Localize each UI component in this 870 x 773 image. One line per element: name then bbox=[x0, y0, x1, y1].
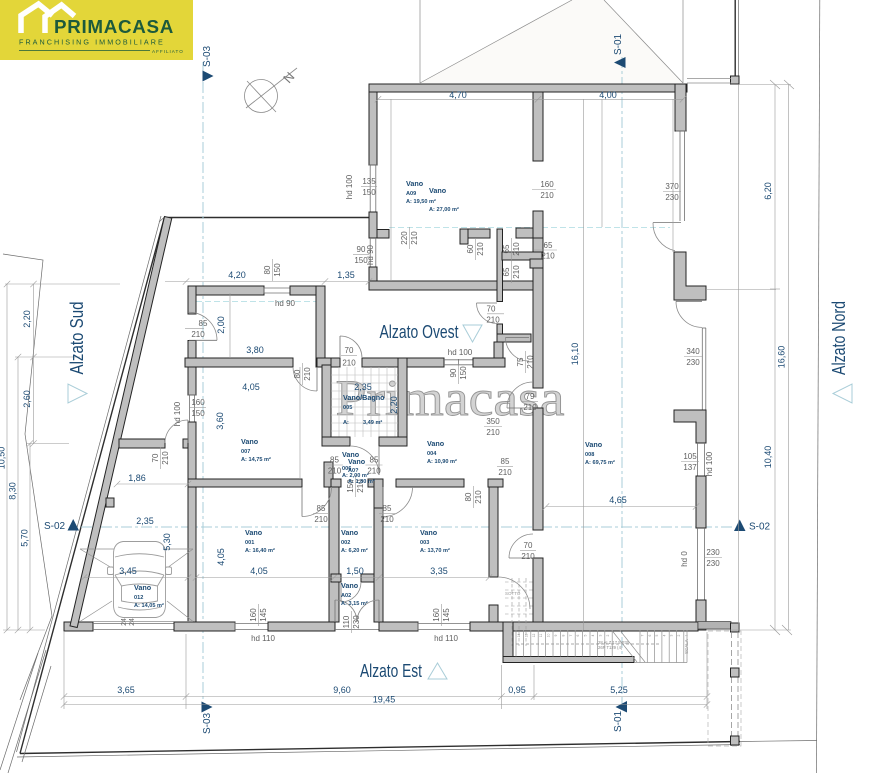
svg-text:3: 3 bbox=[670, 634, 674, 636]
svg-text:65: 65 bbox=[502, 244, 511, 253]
svg-text:A: 2,00 m²: A: 2,00 m² bbox=[342, 472, 369, 479]
svg-text:2: 2 bbox=[677, 634, 681, 636]
svg-text:Vano: Vano bbox=[429, 186, 447, 195]
svg-text:6: 6 bbox=[576, 634, 580, 636]
svg-text:S-03: S-03 bbox=[202, 712, 213, 734]
svg-text:145: 145 bbox=[442, 608, 451, 622]
svg-text:150: 150 bbox=[362, 188, 376, 197]
svg-text:11: 11 bbox=[539, 634, 543, 638]
svg-text:9: 9 bbox=[554, 634, 558, 636]
svg-text:24: 24 bbox=[121, 618, 128, 626]
svg-text:002: 002 bbox=[341, 540, 350, 546]
svg-text:5,70: 5,70 bbox=[20, 529, 30, 547]
svg-text:210: 210 bbox=[486, 316, 500, 325]
svg-text:6,20: 6,20 bbox=[763, 182, 773, 200]
svg-text:012: 012 bbox=[134, 595, 143, 601]
svg-text:1,86: 1,86 bbox=[128, 473, 146, 483]
svg-text:220: 220 bbox=[400, 231, 409, 245]
svg-text:210: 210 bbox=[512, 265, 521, 279]
svg-text:Vano: Vano bbox=[427, 439, 445, 448]
svg-text:4: 4 bbox=[591, 634, 595, 636]
svg-text:230: 230 bbox=[706, 559, 720, 568]
svg-text:85: 85 bbox=[199, 319, 208, 328]
svg-text:160: 160 bbox=[191, 398, 205, 407]
svg-text:S-01: S-01 bbox=[613, 33, 624, 55]
svg-text:16,60: 16,60 bbox=[777, 346, 787, 369]
svg-text:hd 110: hd 110 bbox=[251, 634, 275, 643]
svg-text:210: 210 bbox=[328, 467, 342, 476]
svg-text:210: 210 bbox=[476, 242, 485, 256]
svg-text:210: 210 bbox=[474, 490, 483, 504]
svg-text:4,20: 4,20 bbox=[228, 270, 246, 280]
svg-text:1,50: 1,50 bbox=[346, 566, 364, 576]
svg-text:4,00: 4,00 bbox=[599, 90, 617, 100]
svg-text:hd 90: hd 90 bbox=[275, 299, 296, 308]
svg-text:85: 85 bbox=[383, 504, 392, 513]
svg-text:150: 150 bbox=[273, 263, 282, 277]
svg-text:90: 90 bbox=[449, 368, 458, 377]
svg-text:24: 24 bbox=[129, 618, 136, 626]
svg-text:001: 001 bbox=[245, 540, 254, 546]
svg-text:1,35: 1,35 bbox=[337, 270, 355, 280]
svg-text:210: 210 bbox=[342, 359, 356, 368]
svg-text:3,45: 3,45 bbox=[119, 566, 137, 576]
svg-text:2,60: 2,60 bbox=[22, 390, 32, 408]
svg-text:10,50: 10,50 bbox=[0, 447, 7, 470]
svg-text:210: 210 bbox=[367, 467, 381, 476]
svg-text:Alzato Ovest: Alzato Ovest bbox=[380, 322, 459, 342]
svg-text:210: 210 bbox=[498, 468, 512, 477]
svg-text:6: 6 bbox=[648, 634, 652, 636]
svg-text:003: 003 bbox=[420, 540, 429, 546]
svg-text:Vano: Vano bbox=[348, 457, 366, 466]
svg-text:13: 13 bbox=[524, 634, 528, 638]
svg-text:8: 8 bbox=[561, 634, 565, 636]
svg-text:hd 110: hd 110 bbox=[434, 634, 458, 643]
svg-text:A: 6,20 m²: A: 6,20 m² bbox=[341, 547, 368, 554]
svg-text:FRANCHISING IMMOBILIARE: FRANCHISING IMMOBILIARE bbox=[19, 38, 165, 47]
svg-text:160: 160 bbox=[432, 608, 441, 622]
svg-text:3,65: 3,65 bbox=[117, 685, 135, 695]
svg-text:Vano: Vano bbox=[134, 583, 152, 592]
svg-text:3: 3 bbox=[598, 634, 602, 636]
svg-text:5,30: 5,30 bbox=[162, 533, 172, 551]
svg-text:230: 230 bbox=[665, 193, 679, 202]
svg-text:hd 100: hd 100 bbox=[448, 348, 473, 357]
svg-text:5,25: 5,25 bbox=[610, 685, 628, 695]
svg-text:007: 007 bbox=[241, 449, 250, 455]
svg-text:hd 100: hd 100 bbox=[345, 174, 354, 199]
svg-text:A: 69,75 m²: A: 69,75 m² bbox=[585, 459, 615, 466]
svg-text:210: 210 bbox=[541, 252, 555, 261]
svg-text:S-02: S-02 bbox=[44, 521, 66, 532]
svg-text:Vano: Vano bbox=[406, 179, 424, 188]
svg-text:230: 230 bbox=[706, 548, 720, 557]
svg-text:A: 14,05 m²: A: 14,05 m² bbox=[134, 602, 164, 609]
svg-text:16,10: 16,10 bbox=[570, 343, 580, 366]
svg-text:60: 60 bbox=[466, 244, 475, 253]
svg-text:4,65: 4,65 bbox=[609, 495, 627, 505]
svg-text:79: 79 bbox=[526, 392, 535, 401]
svg-text:Vano: Vano bbox=[341, 528, 359, 537]
svg-text:350: 350 bbox=[486, 417, 500, 426]
svg-text:hd 100: hd 100 bbox=[173, 401, 182, 426]
svg-text:19,45: 19,45 bbox=[373, 695, 396, 705]
svg-text:3,60: 3,60 bbox=[215, 412, 225, 430]
svg-text:A02: A02 bbox=[341, 593, 351, 599]
svg-text:0,95: 0,95 bbox=[508, 685, 526, 695]
svg-text:SOTTO: SOTTO bbox=[505, 591, 521, 596]
svg-text:A: 27,00 m²: A: 27,00 m² bbox=[429, 206, 459, 213]
svg-text:SCALA: SCALA bbox=[684, 639, 689, 654]
svg-text:85: 85 bbox=[501, 457, 510, 466]
svg-text:9,60: 9,60 bbox=[333, 685, 351, 695]
svg-text:160: 160 bbox=[540, 180, 554, 189]
svg-text:160: 160 bbox=[249, 608, 258, 622]
svg-text:210: 210 bbox=[314, 515, 328, 524]
svg-text:10: 10 bbox=[547, 634, 551, 638]
svg-text:150: 150 bbox=[459, 366, 468, 380]
svg-text:A: 14,75 m²: A: 14,75 m² bbox=[241, 456, 271, 463]
svg-text:Vano/Bagno: Vano/Bagno bbox=[343, 393, 385, 402]
svg-text:A: 13,70 m²: A: 13,70 m² bbox=[420, 547, 450, 554]
svg-text:5: 5 bbox=[584, 634, 588, 636]
svg-text:210: 210 bbox=[380, 515, 394, 524]
svg-text:210: 210 bbox=[523, 403, 537, 412]
svg-text:hd 0: hd 0 bbox=[680, 551, 689, 567]
svg-text:3,49 m²: 3,49 m² bbox=[363, 419, 382, 426]
svg-text:S-02: S-02 bbox=[749, 522, 771, 533]
svg-text:4,05: 4,05 bbox=[242, 382, 260, 392]
svg-text:A: 10,90 m²: A: 10,90 m² bbox=[427, 458, 457, 465]
svg-text:2,20: 2,20 bbox=[389, 396, 399, 414]
svg-text:S-01: S-01 bbox=[613, 710, 624, 732]
svg-text:A: 19,50 m²: A: 19,50 m² bbox=[406, 198, 436, 205]
svg-text:S-03: S-03 bbox=[202, 45, 213, 67]
svg-text:Alzato Sud: Alzato Sud bbox=[67, 302, 87, 375]
svg-text:Vano: Vano bbox=[585, 440, 603, 449]
svg-text:hd 90: hd 90 bbox=[366, 244, 375, 265]
svg-text:PRIMACASA: PRIMACASA bbox=[54, 16, 174, 37]
svg-text:90: 90 bbox=[357, 245, 366, 254]
svg-text:10,40: 10,40 bbox=[763, 446, 773, 469]
svg-text:Vano: Vano bbox=[420, 528, 438, 537]
svg-text:75: 75 bbox=[516, 357, 525, 366]
svg-text:70: 70 bbox=[151, 453, 160, 462]
svg-text:110: 110 bbox=[342, 615, 351, 628]
svg-text:3,80: 3,80 bbox=[246, 345, 264, 355]
svg-text:8,30: 8,30 bbox=[8, 482, 18, 500]
svg-text:26P T129 (4): 26P T129 (4) bbox=[598, 645, 623, 650]
svg-text:Alzato Nord: Alzato Nord bbox=[829, 301, 849, 375]
svg-text:5: 5 bbox=[655, 634, 659, 636]
svg-text:2: 2 bbox=[606, 634, 610, 636]
svg-text:65: 65 bbox=[502, 267, 511, 276]
svg-text:12: 12 bbox=[532, 634, 536, 638]
svg-text:4,05: 4,05 bbox=[216, 548, 226, 566]
svg-text:65: 65 bbox=[544, 241, 553, 250]
svg-text:85: 85 bbox=[370, 456, 379, 465]
svg-text:135: 135 bbox=[362, 177, 376, 186]
svg-text:145: 145 bbox=[259, 608, 268, 622]
svg-text:004: 004 bbox=[427, 451, 437, 457]
svg-text:Alzato Est: Alzato Est bbox=[360, 661, 422, 681]
svg-text:150: 150 bbox=[191, 409, 205, 418]
svg-text:2,35: 2,35 bbox=[136, 516, 154, 526]
svg-text:A: 16,40 m²: A: 16,40 m² bbox=[245, 547, 275, 554]
svg-text:Vano: Vano bbox=[245, 528, 263, 537]
svg-text:4,70: 4,70 bbox=[449, 90, 467, 100]
svg-text:2,20: 2,20 bbox=[22, 310, 32, 328]
svg-text:A: 3,15 m²: A: 3,15 m² bbox=[341, 600, 368, 607]
svg-text:005: 005 bbox=[343, 405, 352, 411]
svg-text:210: 210 bbox=[526, 355, 535, 369]
svg-text:210: 210 bbox=[540, 191, 554, 200]
svg-text:80: 80 bbox=[263, 265, 272, 274]
svg-text:A: 1,80 m²: A: 1,80 m² bbox=[348, 478, 375, 485]
svg-text:230: 230 bbox=[352, 615, 361, 629]
svg-text:hd 100: hd 100 bbox=[705, 451, 714, 476]
svg-text:85: 85 bbox=[330, 456, 339, 465]
svg-text:340: 340 bbox=[686, 347, 700, 356]
svg-text:210: 210 bbox=[512, 242, 521, 256]
svg-text:70: 70 bbox=[524, 541, 533, 550]
svg-text:7: 7 bbox=[569, 634, 573, 636]
svg-text:210: 210 bbox=[410, 231, 419, 245]
svg-text:4,05: 4,05 bbox=[250, 566, 268, 576]
svg-text:105: 105 bbox=[683, 452, 697, 461]
svg-text:A09: A09 bbox=[406, 191, 416, 197]
svg-text:1: 1 bbox=[684, 634, 688, 636]
svg-text:210: 210 bbox=[303, 367, 312, 381]
svg-text:AFFILIATO: AFFILIATO bbox=[152, 49, 184, 54]
svg-text:80: 80 bbox=[464, 492, 473, 501]
svg-text:Vano: Vano bbox=[341, 581, 359, 590]
svg-text:7: 7 bbox=[641, 634, 645, 636]
svg-text:80: 80 bbox=[293, 369, 302, 378]
svg-text:210: 210 bbox=[521, 552, 535, 561]
svg-text:A:: A: bbox=[343, 420, 349, 426]
svg-text:3,35: 3,35 bbox=[430, 566, 448, 576]
svg-text:Vano: Vano bbox=[241, 437, 259, 446]
svg-text:210: 210 bbox=[161, 451, 170, 465]
svg-text:2,35: 2,35 bbox=[354, 382, 372, 392]
svg-text:008: 008 bbox=[585, 452, 594, 458]
svg-text:210: 210 bbox=[191, 330, 205, 339]
svg-text:370: 370 bbox=[665, 182, 679, 191]
svg-text:70: 70 bbox=[487, 305, 496, 314]
svg-text:230: 230 bbox=[686, 358, 700, 367]
svg-text:70: 70 bbox=[345, 346, 354, 355]
svg-text:137: 137 bbox=[683, 463, 697, 472]
svg-text:4: 4 bbox=[662, 634, 666, 636]
svg-text:210: 210 bbox=[486, 428, 500, 437]
svg-text:2,00: 2,00 bbox=[216, 316, 226, 334]
svg-text:85: 85 bbox=[317, 504, 326, 513]
